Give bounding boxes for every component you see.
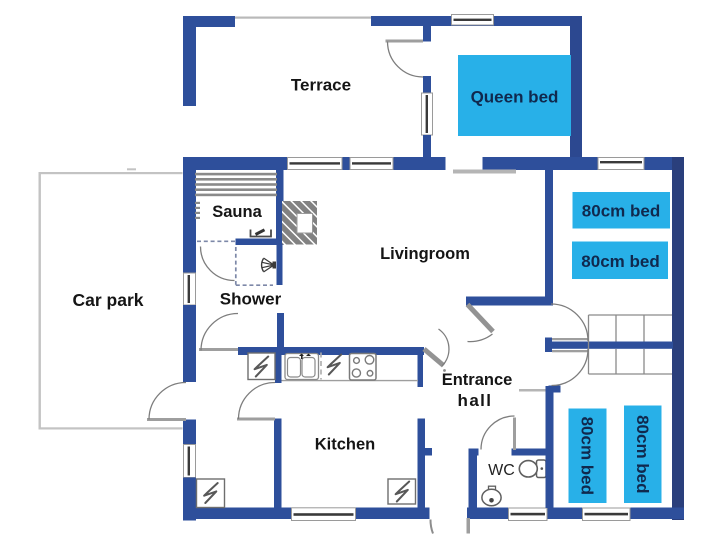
svg-text:80cm bed: 80cm bed <box>578 417 597 495</box>
svg-text:80cm bed: 80cm bed <box>581 252 659 271</box>
svg-text:hall: hall <box>458 391 493 410</box>
svg-text:Kitchen: Kitchen <box>315 436 376 454</box>
svg-text:Queen bed: Queen bed <box>471 88 559 107</box>
svg-text:WC: WC <box>488 462 515 479</box>
svg-text:80cm bed: 80cm bed <box>582 202 660 221</box>
svg-text:Shower: Shower <box>220 290 282 309</box>
svg-text:Car park: Car park <box>72 290 143 310</box>
svg-text:Livingroom: Livingroom <box>380 245 470 263</box>
svg-text:80cm bed: 80cm bed <box>633 415 652 493</box>
svg-text:Sauna: Sauna <box>212 203 262 221</box>
svg-text:Terrace: Terrace <box>291 76 351 95</box>
svg-text:Entrance: Entrance <box>442 371 513 389</box>
